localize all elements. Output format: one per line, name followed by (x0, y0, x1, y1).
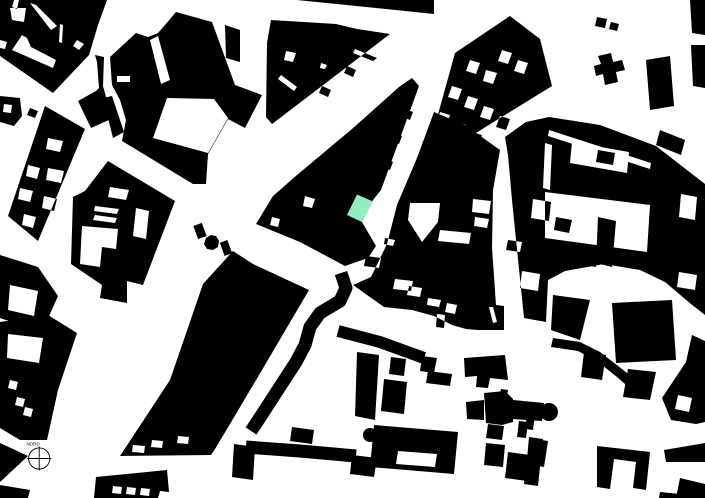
svg-text:NORD: NORD (27, 442, 41, 447)
